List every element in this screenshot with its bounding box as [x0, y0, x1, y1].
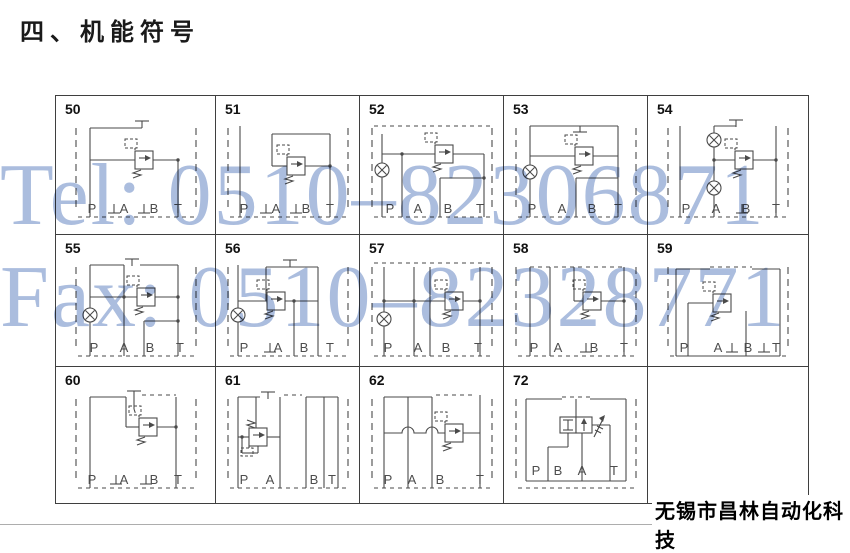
port-label: P [383, 472, 392, 487]
cell-number: 60 [65, 372, 81, 388]
symbol-cell-50: 50PABT [56, 96, 216, 235]
port-label: B [301, 201, 310, 216]
port-label: A [119, 201, 128, 216]
hydraulic-symbol: PABT [66, 114, 206, 226]
port-label: B [299, 340, 308, 355]
cell-number: 51 [225, 101, 241, 117]
symbol-cell-55: 55PABT [56, 235, 216, 367]
port-label: A [714, 340, 723, 355]
port-label: B [553, 463, 562, 478]
port-label: A [119, 340, 128, 355]
port-label: A [265, 472, 274, 487]
port-label: A [553, 340, 562, 355]
cell-number: 55 [65, 240, 81, 256]
port-label: T [328, 472, 336, 487]
symbol-cell-60: 60PABT [56, 367, 216, 503]
cell-number: 54 [657, 101, 673, 117]
symbol-cell-72: 72PBAT [504, 367, 648, 503]
cell-number: 57 [369, 240, 385, 256]
hydraulic-symbol: PABT [362, 253, 502, 365]
hydraulic-symbol: PABT [658, 114, 798, 226]
symbol-cell-58: 58PABT [504, 235, 648, 367]
port-label: T [476, 472, 484, 487]
port-label: A [273, 340, 282, 355]
port-label: B [441, 340, 450, 355]
port-label: B [744, 340, 753, 355]
hydraulic-symbol: PABT [218, 385, 358, 497]
port-label: T [174, 472, 182, 487]
port-label: T [614, 201, 622, 216]
port-label: P [531, 463, 540, 478]
port-label: B [443, 201, 452, 216]
hydraulic-symbol: PABT [506, 114, 646, 226]
port-label: P [385, 201, 394, 216]
port-label: P [239, 472, 248, 487]
port-label: T [474, 340, 482, 355]
port-label: B [149, 201, 158, 216]
port-label: T [610, 463, 618, 478]
port-label: A [413, 340, 422, 355]
port-label: P [87, 201, 96, 216]
hydraulic-symbol: PBAT [506, 385, 646, 497]
port-label: P [89, 340, 98, 355]
cell-number: 52 [369, 101, 385, 117]
port-label: T [772, 201, 780, 216]
symbol-cell-61: 61PABT [216, 367, 360, 503]
port-label: P [682, 201, 691, 216]
port-label: T [620, 340, 628, 355]
symbol-grid: 50PABT51PABT52PABT53PABT54PABT55PABT56PA… [55, 95, 809, 504]
hydraulic-symbol: PABT [362, 385, 502, 497]
port-label: B [742, 201, 751, 216]
symbol-cell-57: 57PABT [360, 235, 504, 367]
symbol-cell-62: 62PABT [360, 367, 504, 503]
port-label: A [557, 201, 566, 216]
hydraulic-symbol: PABT [218, 114, 358, 226]
hydraulic-symbol: PABT [362, 114, 502, 226]
port-label: P [239, 201, 248, 216]
symbol-cell-54: 54PABT [648, 96, 808, 235]
port-label: A [407, 472, 416, 487]
empty-cell [648, 367, 808, 503]
port-label: B [149, 472, 158, 487]
hydraulic-symbol: PABT [658, 253, 798, 365]
cell-number: 72 [513, 372, 529, 388]
catalog-page: { "page": { "title": "四、机能符号", "company"… [0, 0, 850, 530]
cell-number: 58 [513, 240, 529, 256]
cell-number: 53 [513, 101, 529, 117]
port-label: B [435, 472, 444, 487]
port-label: B [589, 340, 598, 355]
port-label: B [587, 201, 596, 216]
port-label: P [383, 340, 392, 355]
cell-number: 50 [65, 101, 81, 117]
cell-number: 56 [225, 240, 241, 256]
symbol-cell-52: 52PABT [360, 96, 504, 235]
hydraulic-symbol: PABT [506, 253, 646, 365]
hydraulic-symbol: PABT [66, 385, 206, 497]
port-label: T [772, 340, 780, 355]
hydraulic-symbol: PABT [66, 253, 206, 365]
cell-number: 59 [657, 240, 673, 256]
cell-number: 61 [225, 372, 241, 388]
port-label: A [712, 201, 721, 216]
port-label: A [413, 201, 422, 216]
port-label: T [176, 340, 184, 355]
symbol-cell-56: 56PABT [216, 235, 360, 367]
port-label: A [271, 201, 280, 216]
port-label: A [119, 472, 128, 487]
port-label: T [326, 201, 334, 216]
page-title: 四、机能符号 [20, 12, 200, 47]
port-label: A [577, 463, 586, 478]
symbol-cell-51: 51PABT [216, 96, 360, 235]
port-label: P [529, 340, 538, 355]
hydraulic-symbol: PABT [218, 253, 358, 365]
company-name: 无锡市昌林自动化科技 [652, 495, 850, 553]
port-label: T [174, 201, 182, 216]
port-label: P [680, 340, 689, 355]
port-label: P [527, 201, 536, 216]
port-label: T [326, 340, 334, 355]
cell-number: 62 [369, 372, 385, 388]
port-label: T [476, 201, 484, 216]
symbol-cell-59: 59PABT [648, 235, 808, 367]
port-label: B [309, 472, 318, 487]
port-label: P [239, 340, 248, 355]
symbol-cell-53: 53PABT [504, 96, 648, 235]
port-label: P [87, 472, 96, 487]
port-label: B [145, 340, 154, 355]
